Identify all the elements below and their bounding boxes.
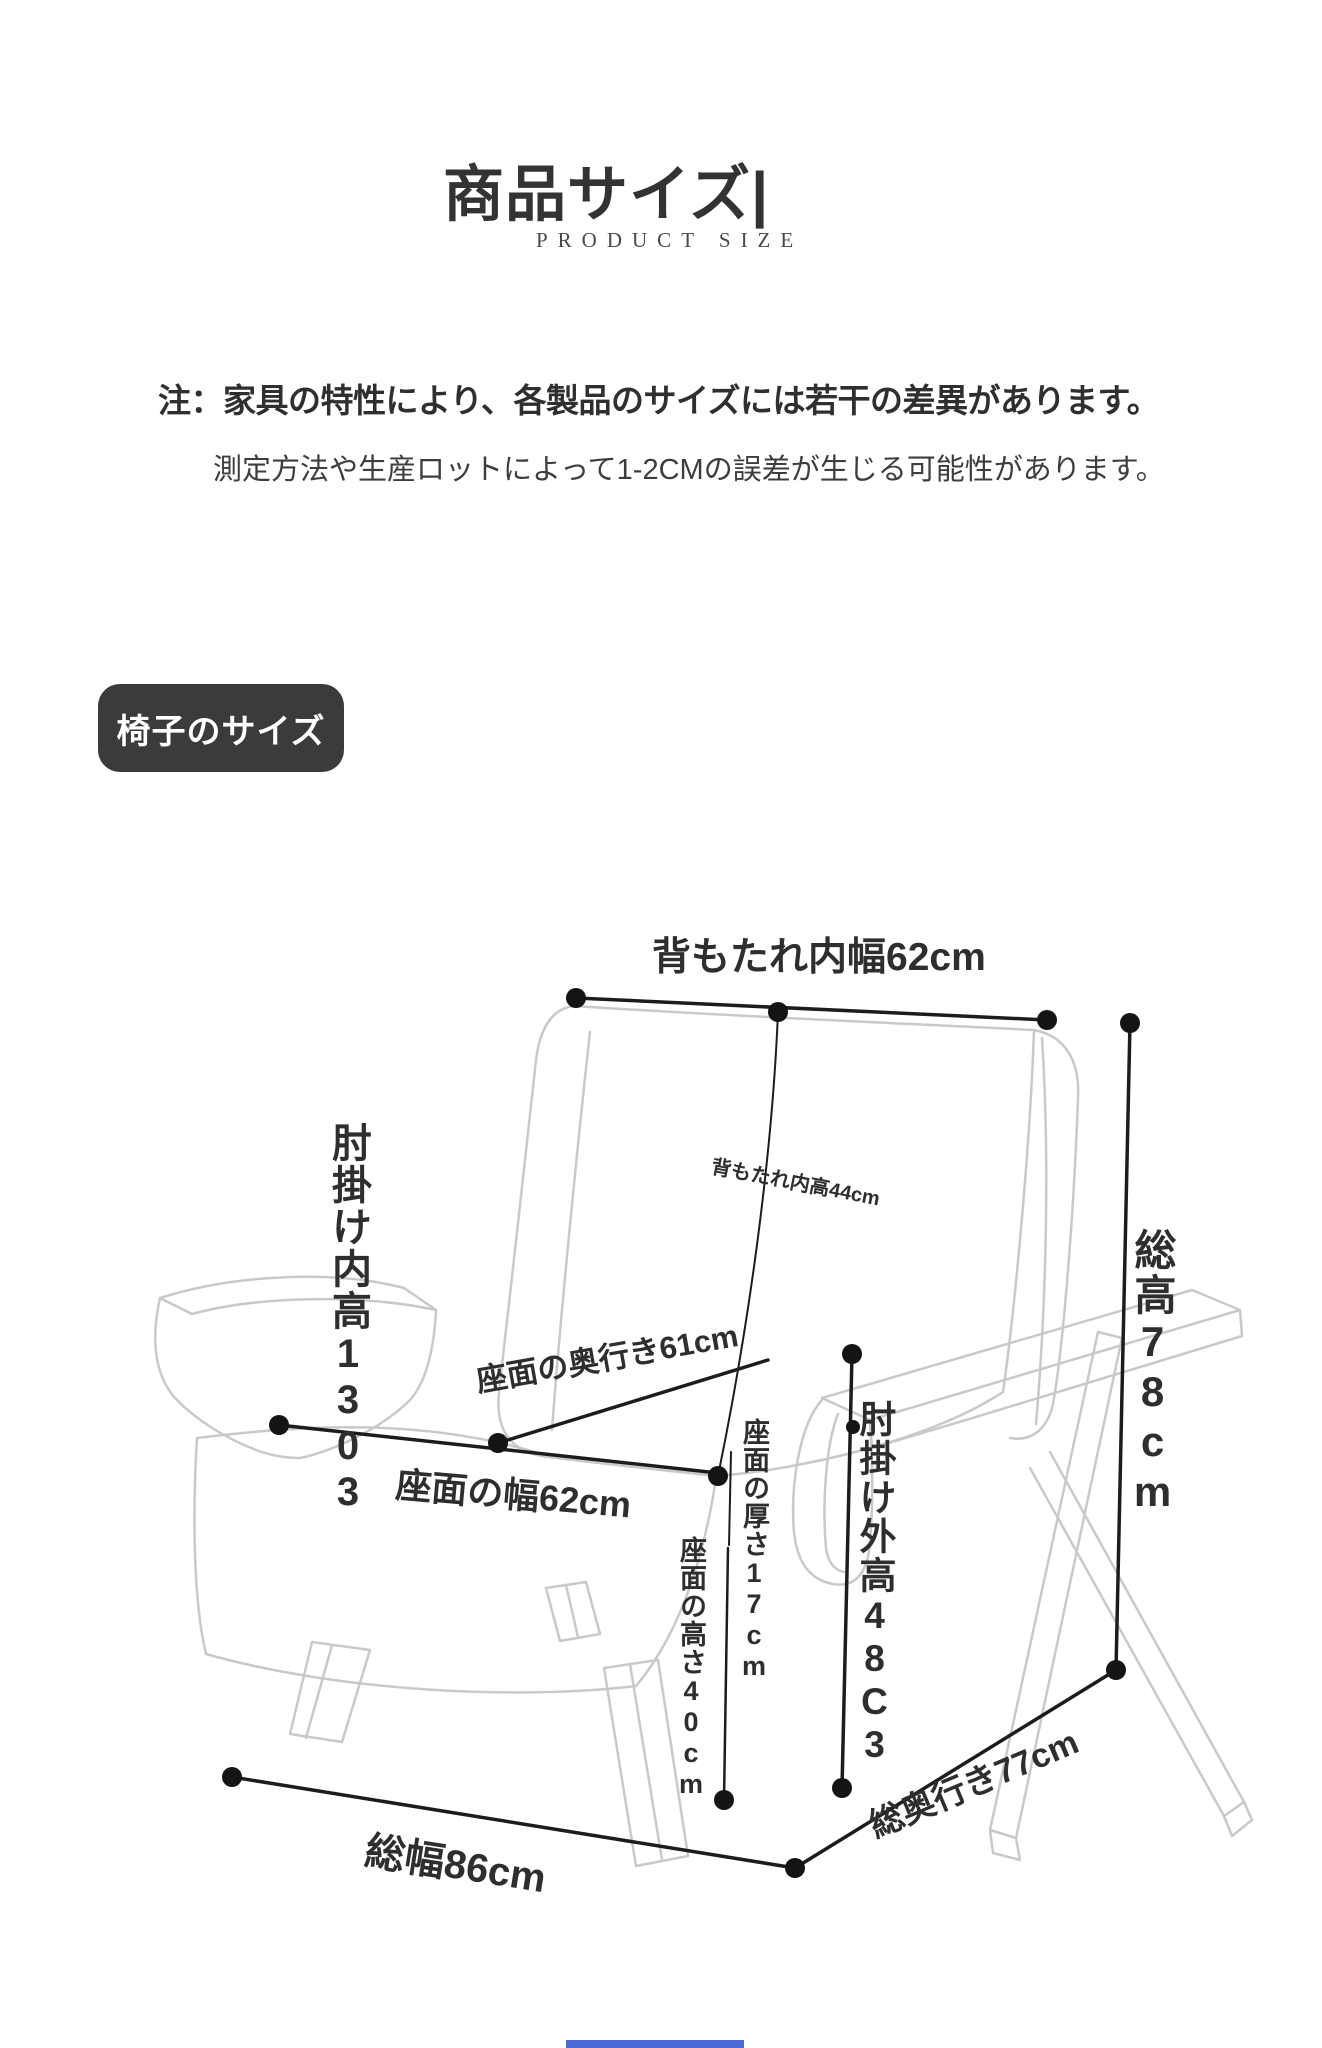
measure-seat-height-line [724, 1548, 728, 1800]
next-section-accent-strip [566, 2040, 744, 2048]
measure-seat-thickness-line [729, 1452, 731, 1545]
label-seat-height: 座面の高さ40cm [677, 1536, 704, 1800]
measure-backrest-inner-width-line [576, 998, 1047, 1020]
measure-backrest-inner-height-line [718, 1012, 778, 1476]
label-total-height: 総高78cm [1131, 1228, 1173, 1518]
label-backrest-inner-width: 背もたれ内幅62cm [652, 926, 986, 982]
chair-dimension-diagram [0, 0, 1322, 2048]
label-armrest-outer-height: 肘掛け外高48C3 [856, 1400, 893, 1767]
product-size-page: 商品サイズ| PRODUCT SIZE 注：家具の特性により、各製品のサイズには… [0, 0, 1322, 2048]
label-seat-thickness: 座面の厚さ17cm [740, 1418, 767, 1682]
label-armrest-inner-height: 肘掛け内高1303 [328, 1122, 368, 1516]
